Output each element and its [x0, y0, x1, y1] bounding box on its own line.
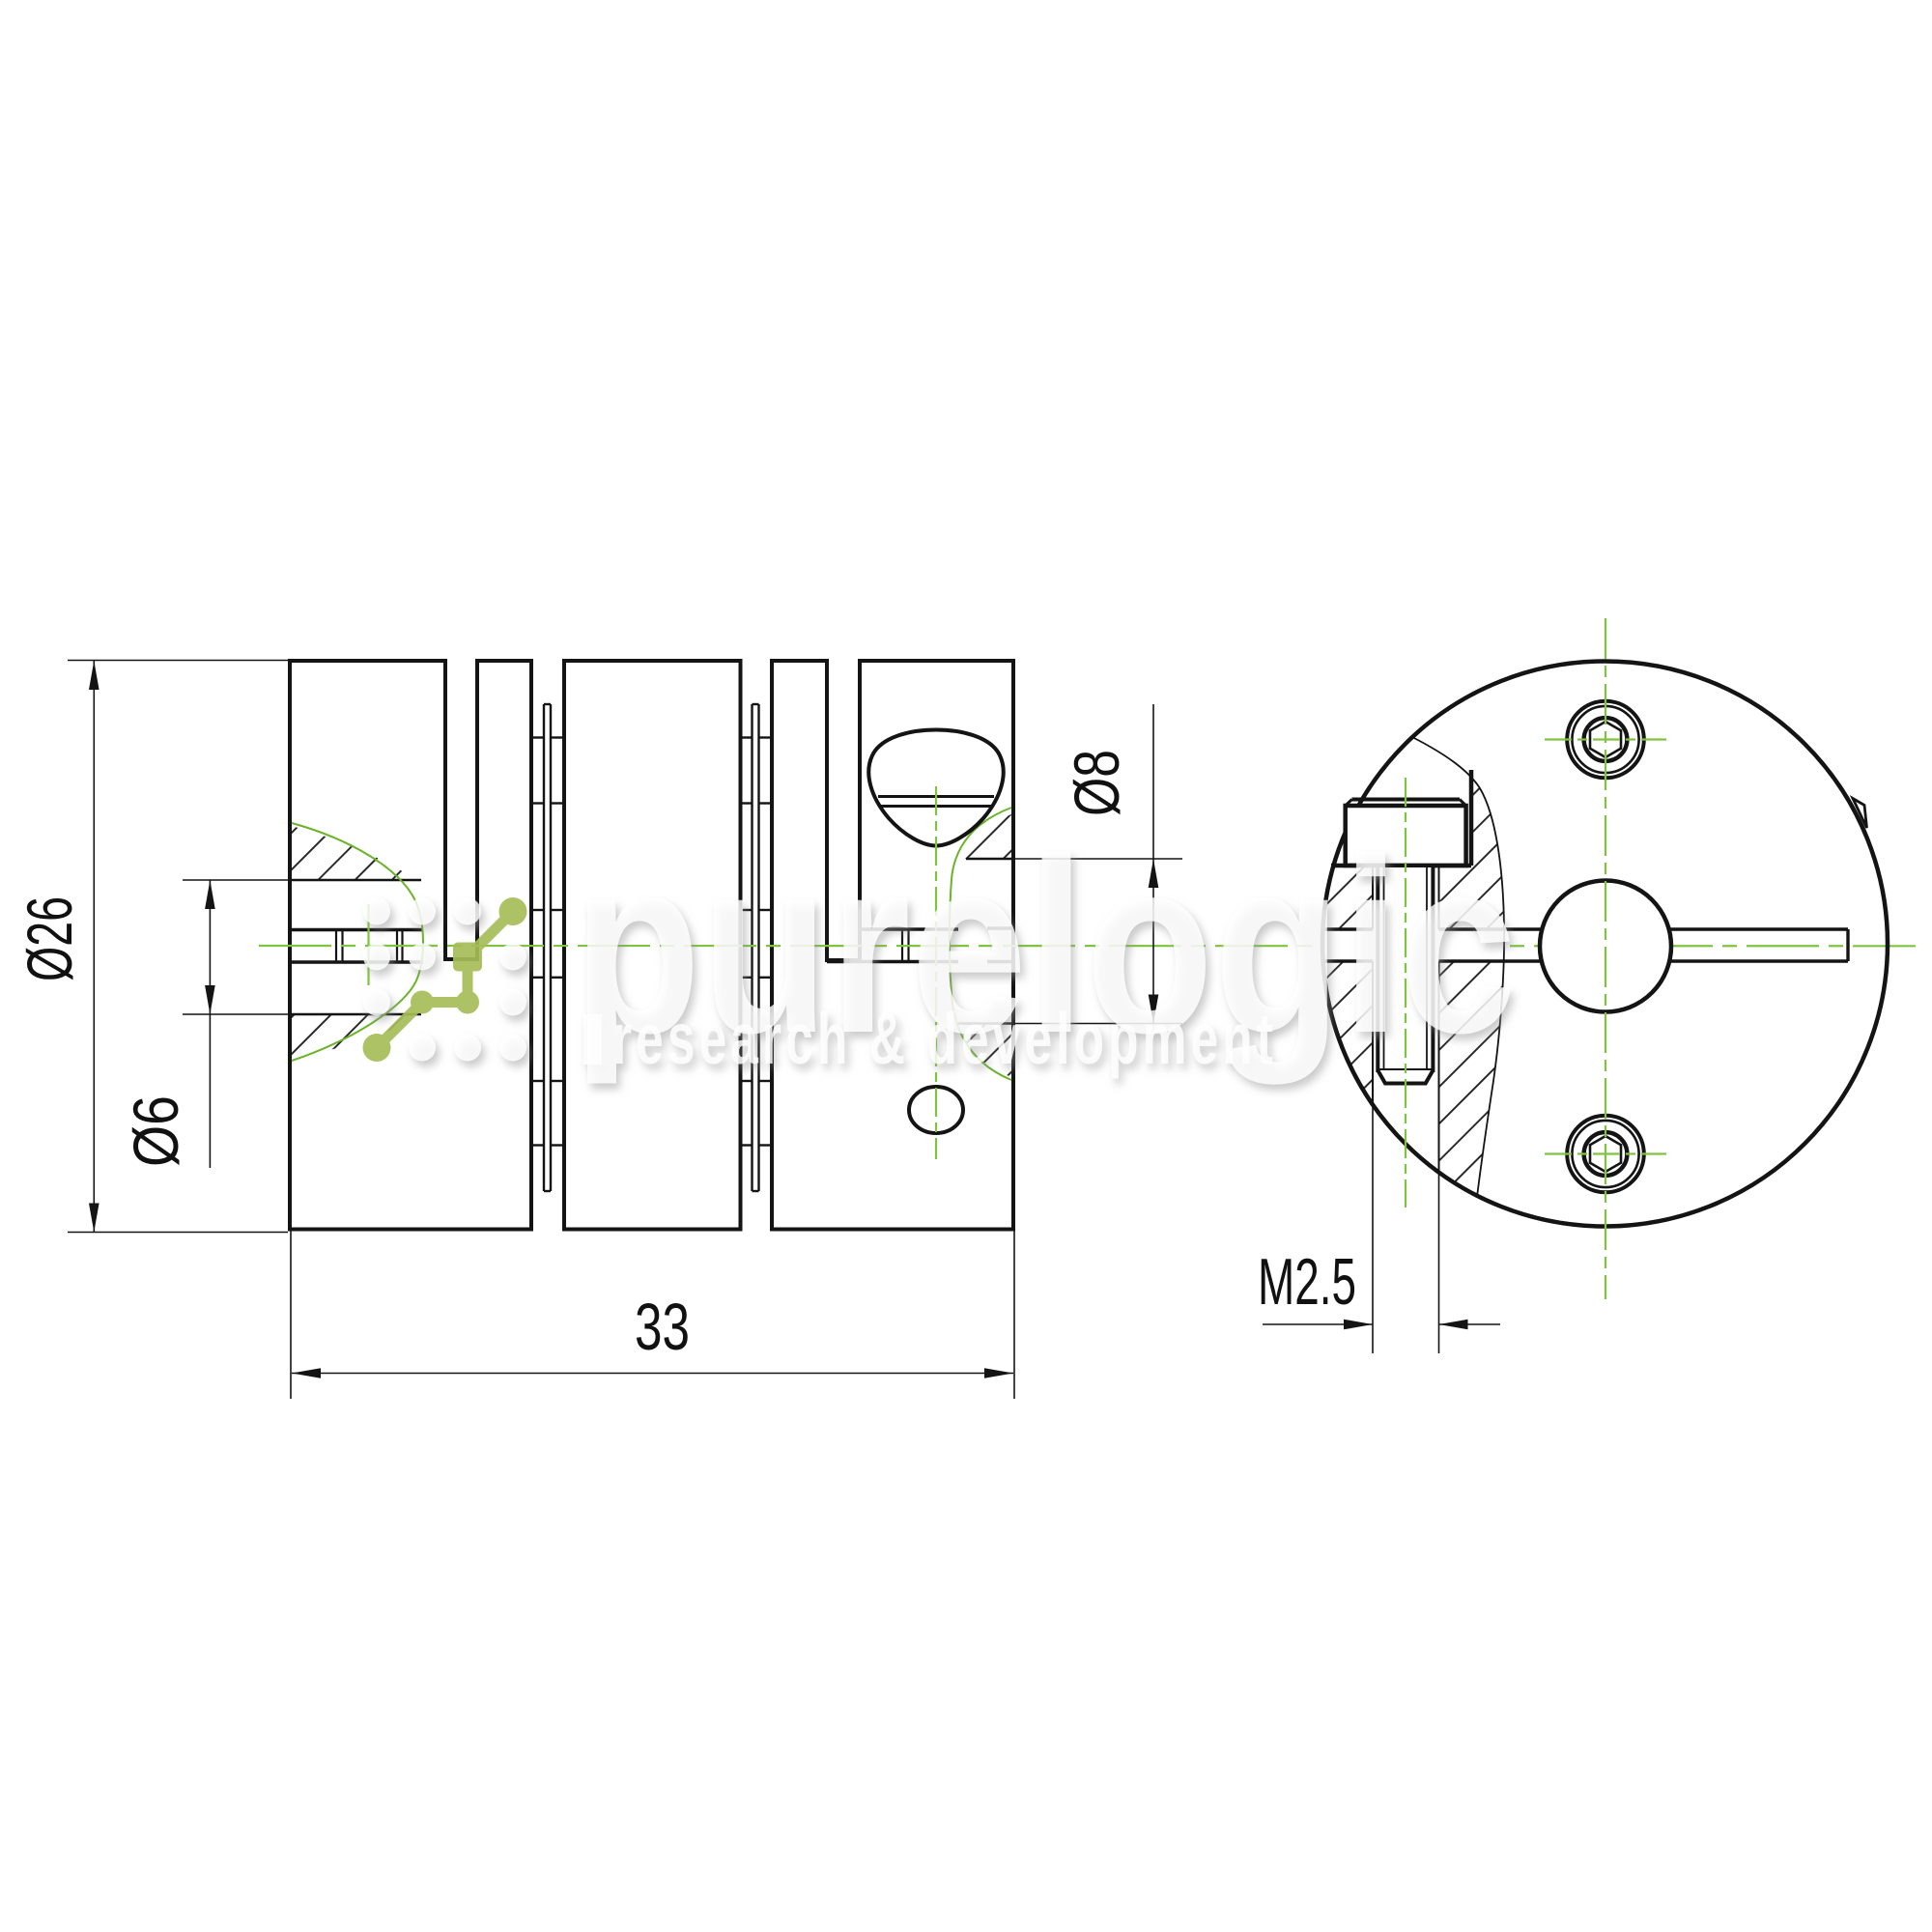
svg-text:33: 33 [635, 1290, 690, 1364]
svg-text:Ø26: Ø26 [14, 896, 85, 981]
svg-text:Ø6: Ø6 [120, 1095, 191, 1167]
svg-text:research & development: research & development [612, 998, 1277, 1079]
svg-text:M2.5: M2.5 [1258, 1245, 1356, 1319]
